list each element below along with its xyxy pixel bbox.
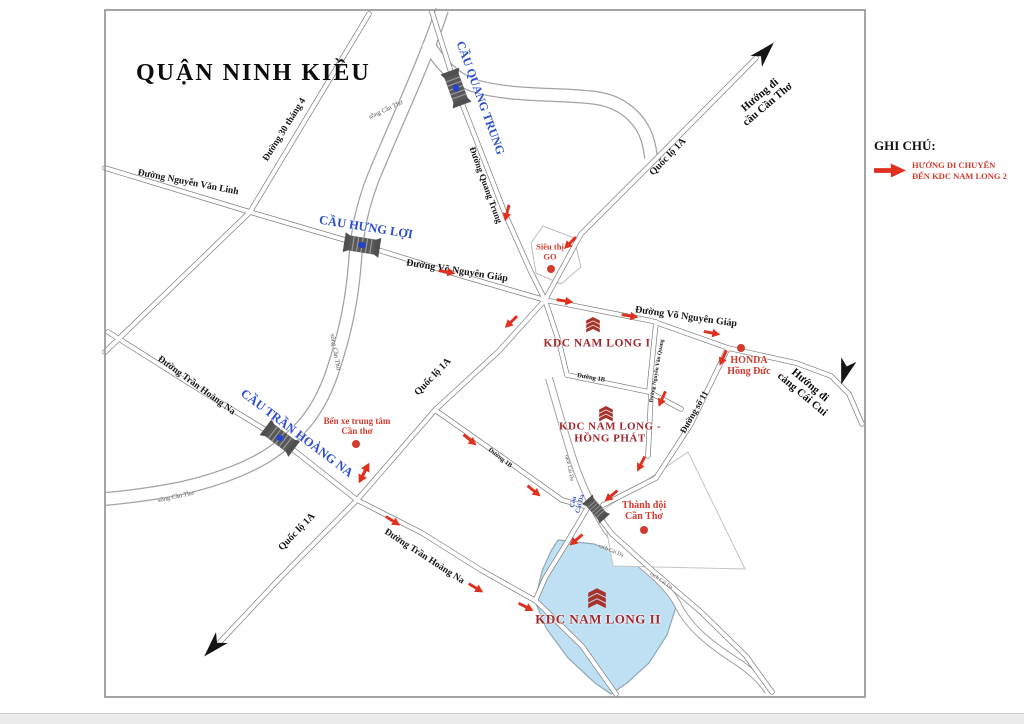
- map-label-layer: Đường Nguyễn Văn LinhĐường 30 tháng 4sôn…: [0, 0, 1024, 724]
- road-label-duong-1b-south: Đường 1B: [487, 446, 514, 469]
- legend-heading: GHI CHÚ:: [874, 138, 1022, 154]
- route-arrow-icon: [561, 234, 579, 252]
- poi-label-ben-xe: Bến xe trung tâm Cần thơ: [324, 416, 391, 436]
- route-arrow-icon: [354, 460, 373, 485]
- route-arrow-icon: [438, 266, 456, 278]
- route-arrow-icon: [501, 204, 514, 223]
- direction-label-cau-can-tho: Hướng đi cầu Cần Thơ: [733, 71, 795, 129]
- bridge-label-cau-quang-trung: CẦU QUANG TRUNG: [453, 39, 507, 156]
- road-label-duong-1b-north: Đường 1B: [576, 372, 605, 384]
- arrow-to-cau-can-tho: [750, 37, 779, 67]
- poi-label-thanh-doi: Thành đội Cần Thơ: [622, 500, 666, 522]
- road-label-duong-so-11: Đường số 11: [678, 389, 710, 435]
- legend-route-line1: HƯỚNG DI CHUYỂN: [912, 160, 1007, 171]
- river-label-song-can-tho-1: sông Cần Thơ: [368, 99, 404, 121]
- route-arrow-icon: [633, 454, 649, 473]
- road-label-quoc-lo-1a-south: Quốc lộ 1A: [276, 511, 317, 553]
- arrow-quoc-lo-1a-southwest: [198, 632, 227, 662]
- road-label-tran-hoang-na-west: Đường Trần Hoàng Na: [155, 354, 237, 417]
- route-arrow-icon: [502, 313, 520, 331]
- route-arrow-icon: [703, 327, 721, 339]
- route-arrow-icon: [525, 482, 544, 500]
- route-arrow-icon: [567, 531, 586, 549]
- poi-dot-sieu-thi-go: [547, 265, 555, 273]
- route-arrow-icon: [383, 513, 402, 530]
- road-label-vo-nguyen-giap-west: Đường Võ Nguyên Giáp: [405, 257, 508, 284]
- district-title: QUẬN NINH KIỀU: [136, 60, 371, 87]
- route-arrow-icon: [556, 295, 574, 307]
- bridge-label-cau-hung-loi: CẦU HƯNG LỢI: [318, 213, 414, 242]
- route-arrow-icon: [466, 580, 485, 596]
- river-label-rach-cai-da-3: rạch Cái Da: [648, 571, 673, 591]
- river-label-rach-cai-da-1: rạch Cái Da: [563, 455, 574, 482]
- poi-dot-thanh-doi: [640, 526, 648, 534]
- route-arrow-icon: [874, 163, 906, 178]
- kdc-label-nam-long-1: KDC NAM LONG I: [544, 338, 651, 351]
- direction-label-cang-cai-cui: Hướng đi cảng Cái Cui: [775, 361, 838, 419]
- route-arrow-icon: [654, 389, 669, 408]
- route-arrow-icon: [516, 599, 535, 615]
- road-label-quoc-lo-1a-mid: Quốc lộ 1A: [412, 356, 453, 398]
- kdc-label-nam-long-2: KDC NAM LONG II: [535, 613, 661, 628]
- map-page: Đường Nguyễn Văn LinhĐường 30 tháng 4sôn…: [0, 0, 1024, 724]
- route-arrow-icon: [461, 431, 480, 449]
- river-label-song-can-tho-3: sông Cần Thơ: [157, 490, 194, 505]
- poi-dot-honda: [737, 344, 745, 352]
- road-label-nguyen-van-linh: Đường Nguyễn Văn Linh: [137, 168, 240, 198]
- arrow-to-cang-cai-cui: [834, 357, 857, 387]
- kdc-label-nam-long-hong-phat: KDC NAM LONG - HỒNG PHÁT: [559, 421, 661, 446]
- bottom-strip: [0, 713, 1024, 724]
- road-label-quang-trung: Đường Quang Trung: [467, 145, 504, 224]
- route-arrow-icon: [621, 310, 639, 322]
- poi-label-honda-hong-duc: HONDA Hồng Đức: [727, 355, 771, 377]
- road-label-vo-nguyen-giap-east: Đường Võ Nguyên Giáp: [634, 304, 737, 329]
- legend-route-line2: ĐẾN KDC NAM LONG 2: [912, 171, 1007, 182]
- road-label-quoc-lo-1a-top: Quốc lộ 1A: [647, 136, 688, 178]
- legend: GHI CHÚ: HƯỚNG DI CHUYỂN ĐẾN KDC NAM LON…: [874, 138, 1022, 183]
- river-label-rach-cai-da-2: rạch Cái Da: [598, 543, 625, 559]
- bridge-label-cau-cai-da: Cầu Cái Da: [567, 492, 586, 514]
- river-label-song-can-tho-2: sông Cần Thơ: [328, 333, 342, 370]
- road-label-30-thang-4: Đường 30 tháng 4: [261, 96, 308, 163]
- road-label-tran-hoang-na-south: Đường Trần Hoàng Na: [382, 527, 466, 587]
- route-arrow-icon: [602, 487, 621, 505]
- poi-dot-ben-xe: [352, 440, 360, 448]
